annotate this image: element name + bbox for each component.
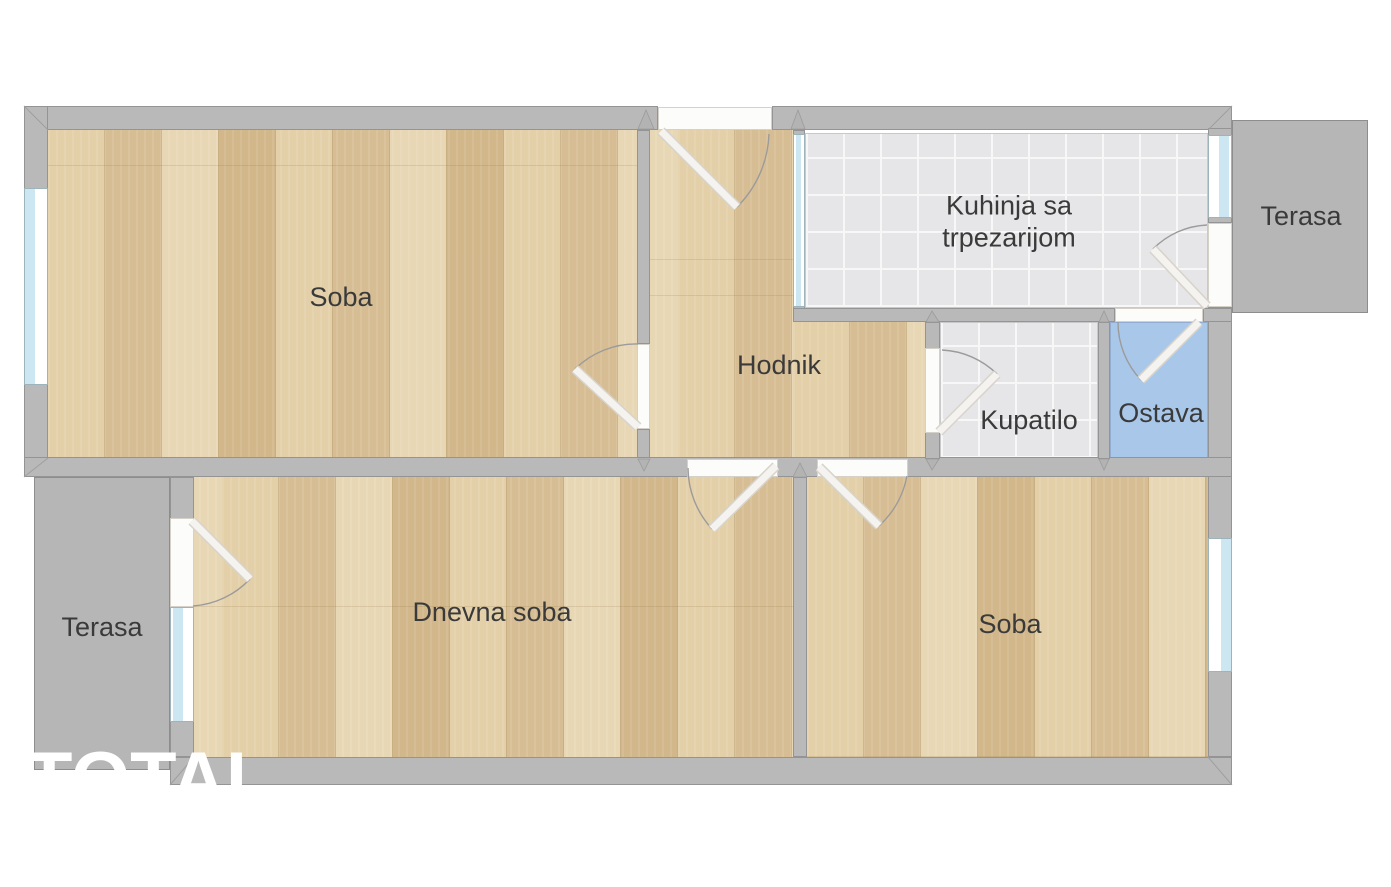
window-kitchen-hallway xyxy=(793,134,805,307)
label-hallway: Hodnik xyxy=(737,349,821,381)
wall-middle-horizontal xyxy=(24,457,1232,477)
wall-top-left xyxy=(24,106,658,130)
living-terrace-door-opening xyxy=(170,518,194,607)
watermark-text: TOTAL xyxy=(26,742,272,818)
wall-kitchen-bottom-right xyxy=(1203,308,1232,322)
wall-left-upper xyxy=(24,106,48,190)
window-glass xyxy=(796,135,801,306)
window-living-terrace xyxy=(170,607,194,722)
label-kitchen: Kuhinja sa trpezarijom xyxy=(904,190,1114,255)
room-hallway-floor xyxy=(650,130,793,459)
bathroom-door-opening xyxy=(925,348,940,433)
wall-right-c xyxy=(1208,671,1232,757)
window-glass xyxy=(173,608,183,721)
wall-living-soba-divider xyxy=(793,477,807,757)
room-storage-floor xyxy=(1110,322,1208,459)
floor-plan: Soba Kuhinja sa trpezarijom Terasa Hodni… xyxy=(0,0,1391,887)
room-bathroom-floor xyxy=(940,322,1098,459)
soba-top-door-opening xyxy=(637,344,650,429)
entrance-door-opening xyxy=(658,107,772,130)
wall-top-right xyxy=(772,106,1232,130)
window-glass xyxy=(1219,136,1229,217)
label-storage: Ostava xyxy=(1118,397,1204,429)
window-soba-bottom-right xyxy=(1208,538,1232,672)
window-kitchen-terrace xyxy=(1208,135,1232,218)
window-glass xyxy=(1221,539,1231,671)
wall-bathroom-storage-divider xyxy=(1098,322,1110,459)
label-soba-top: Soba xyxy=(309,281,372,313)
label-soba-bottom: Soba xyxy=(978,608,1041,640)
wall-bottom xyxy=(170,757,1232,785)
window-soba-top-left xyxy=(24,188,48,385)
label-terrace-top: Terasa xyxy=(1260,200,1341,232)
wall-right-b xyxy=(1208,307,1232,539)
room-hallway-extension-floor xyxy=(793,322,925,459)
wall-soba-hallway-upper xyxy=(637,130,650,344)
label-terrace-bottom: Terasa xyxy=(61,611,142,643)
wall-kitchen-bottom-left xyxy=(793,308,1115,322)
living-door-opening xyxy=(687,459,778,477)
wall-soba-hallway-lower xyxy=(637,429,650,459)
kitchen-terrace-door-opening xyxy=(1208,223,1232,307)
soba-bottom-door-opening xyxy=(817,459,908,477)
storage-door-opening xyxy=(1115,308,1203,322)
window-glass xyxy=(25,189,35,384)
label-bathroom: Kupatilo xyxy=(980,404,1078,436)
label-living-room: Dnevna soba xyxy=(412,596,571,628)
